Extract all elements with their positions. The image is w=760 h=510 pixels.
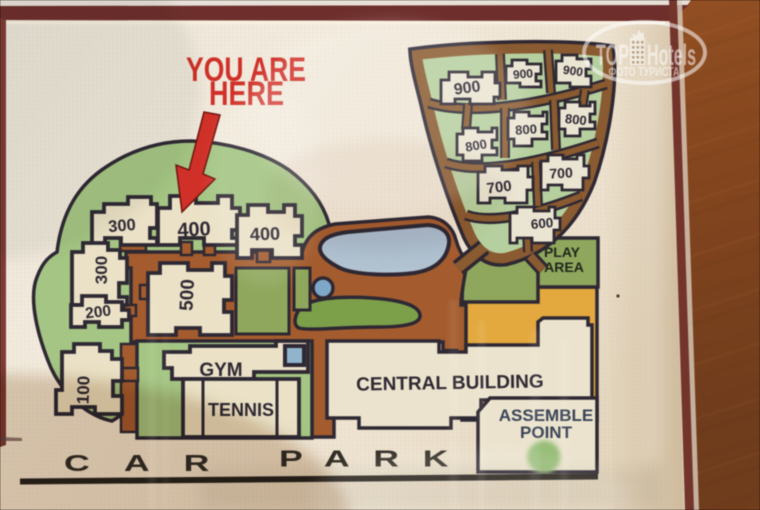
- svg-text:AREA: AREA: [544, 259, 584, 275]
- svg-text:800: 800: [564, 111, 587, 128]
- svg-text:700: 700: [549, 164, 573, 181]
- svg-text:900: 900: [562, 63, 584, 80]
- svg-text:400: 400: [177, 218, 211, 242]
- svg-text:200: 200: [84, 302, 112, 322]
- svg-text:300: 300: [92, 256, 111, 284]
- svg-text:500: 500: [176, 279, 199, 312]
- svg-text:600: 600: [530, 215, 554, 232]
